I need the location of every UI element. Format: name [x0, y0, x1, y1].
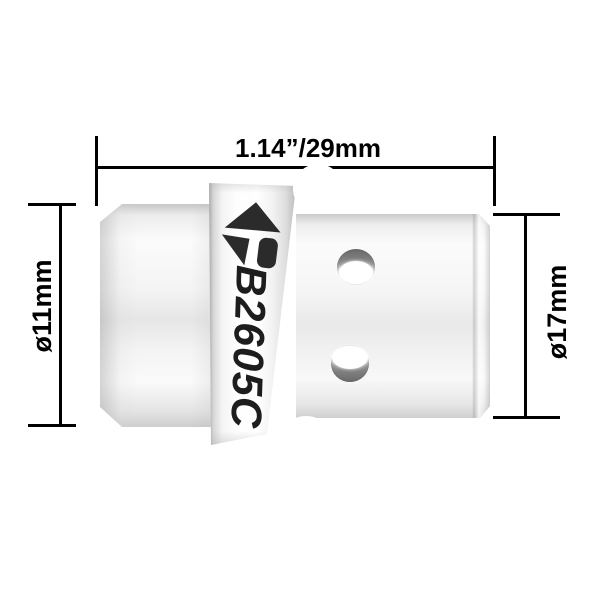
top-dimension-extension-line-left — [95, 136, 98, 206]
top-dimension-line — [95, 166, 496, 169]
top-dimension-extension-line-right — [493, 136, 496, 206]
right-dimension-tick-top — [493, 213, 560, 216]
top-width-dimension-label: 1.14”/29mm — [208, 133, 408, 163]
band-body-fillet-bottom — [278, 416, 334, 472]
right-dimension-line — [524, 214, 527, 419]
right-diameter-dimension-label: ø17mm — [540, 252, 574, 372]
left-dimension-tick-top — [28, 203, 76, 206]
diagram-canvas: 1.14”/29mm ø11mm ø17mm B2605C — [0, 0, 600, 600]
gas-hole-upper-highlight — [339, 261, 373, 284]
left-dimension-tick-bottom — [28, 424, 76, 427]
diffuser-small-cylinder-body — [100, 204, 214, 427]
gas-hole-upper — [337, 249, 375, 285]
part-model-label: B2605C — [223, 264, 272, 429]
left-dimension-line — [59, 204, 62, 427]
right-dimension-tick-bottom — [493, 416, 560, 419]
diffuser-large-cylinder-body — [296, 214, 490, 418]
brand-logo-icon — [216, 196, 288, 273]
gas-hole-lower — [331, 345, 369, 382]
band-body-fillet-top — [293, 164, 343, 214]
gas-hole-lower-highlight — [332, 346, 368, 369]
left-diameter-dimension-label: ø11mm — [25, 246, 59, 366]
